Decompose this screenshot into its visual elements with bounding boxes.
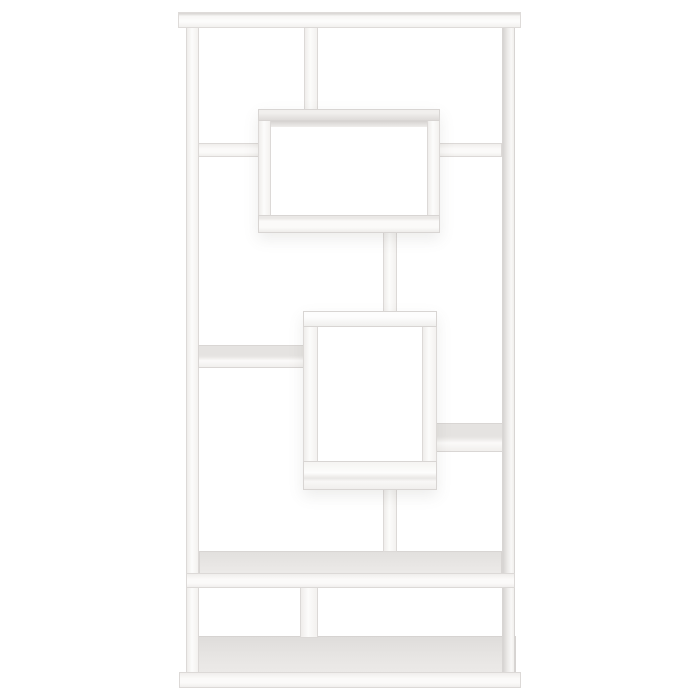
upper-box-inner-shade [271,121,427,127]
upper-box-top [258,109,440,121]
upper-box-connector [383,230,397,313]
bottom-divider [300,587,318,638]
top-bar [178,12,521,28]
middle-left-shelf [198,345,305,368]
upper-box-bottom [258,215,440,233]
long-shelf-front [186,573,515,588]
top-divider [304,27,318,111]
lower-box-top [303,311,437,327]
bookcase-product-photo [0,0,700,700]
base-top-surface [186,636,516,675]
middle-right-shelf [436,423,503,452]
top-right-shelf [438,143,502,157]
top-left-shelf [198,143,260,157]
lower-box-connector [383,488,397,552]
lower-box-bottom [303,461,437,490]
base-front [179,672,521,688]
long-shelf-top-surface [199,551,502,575]
